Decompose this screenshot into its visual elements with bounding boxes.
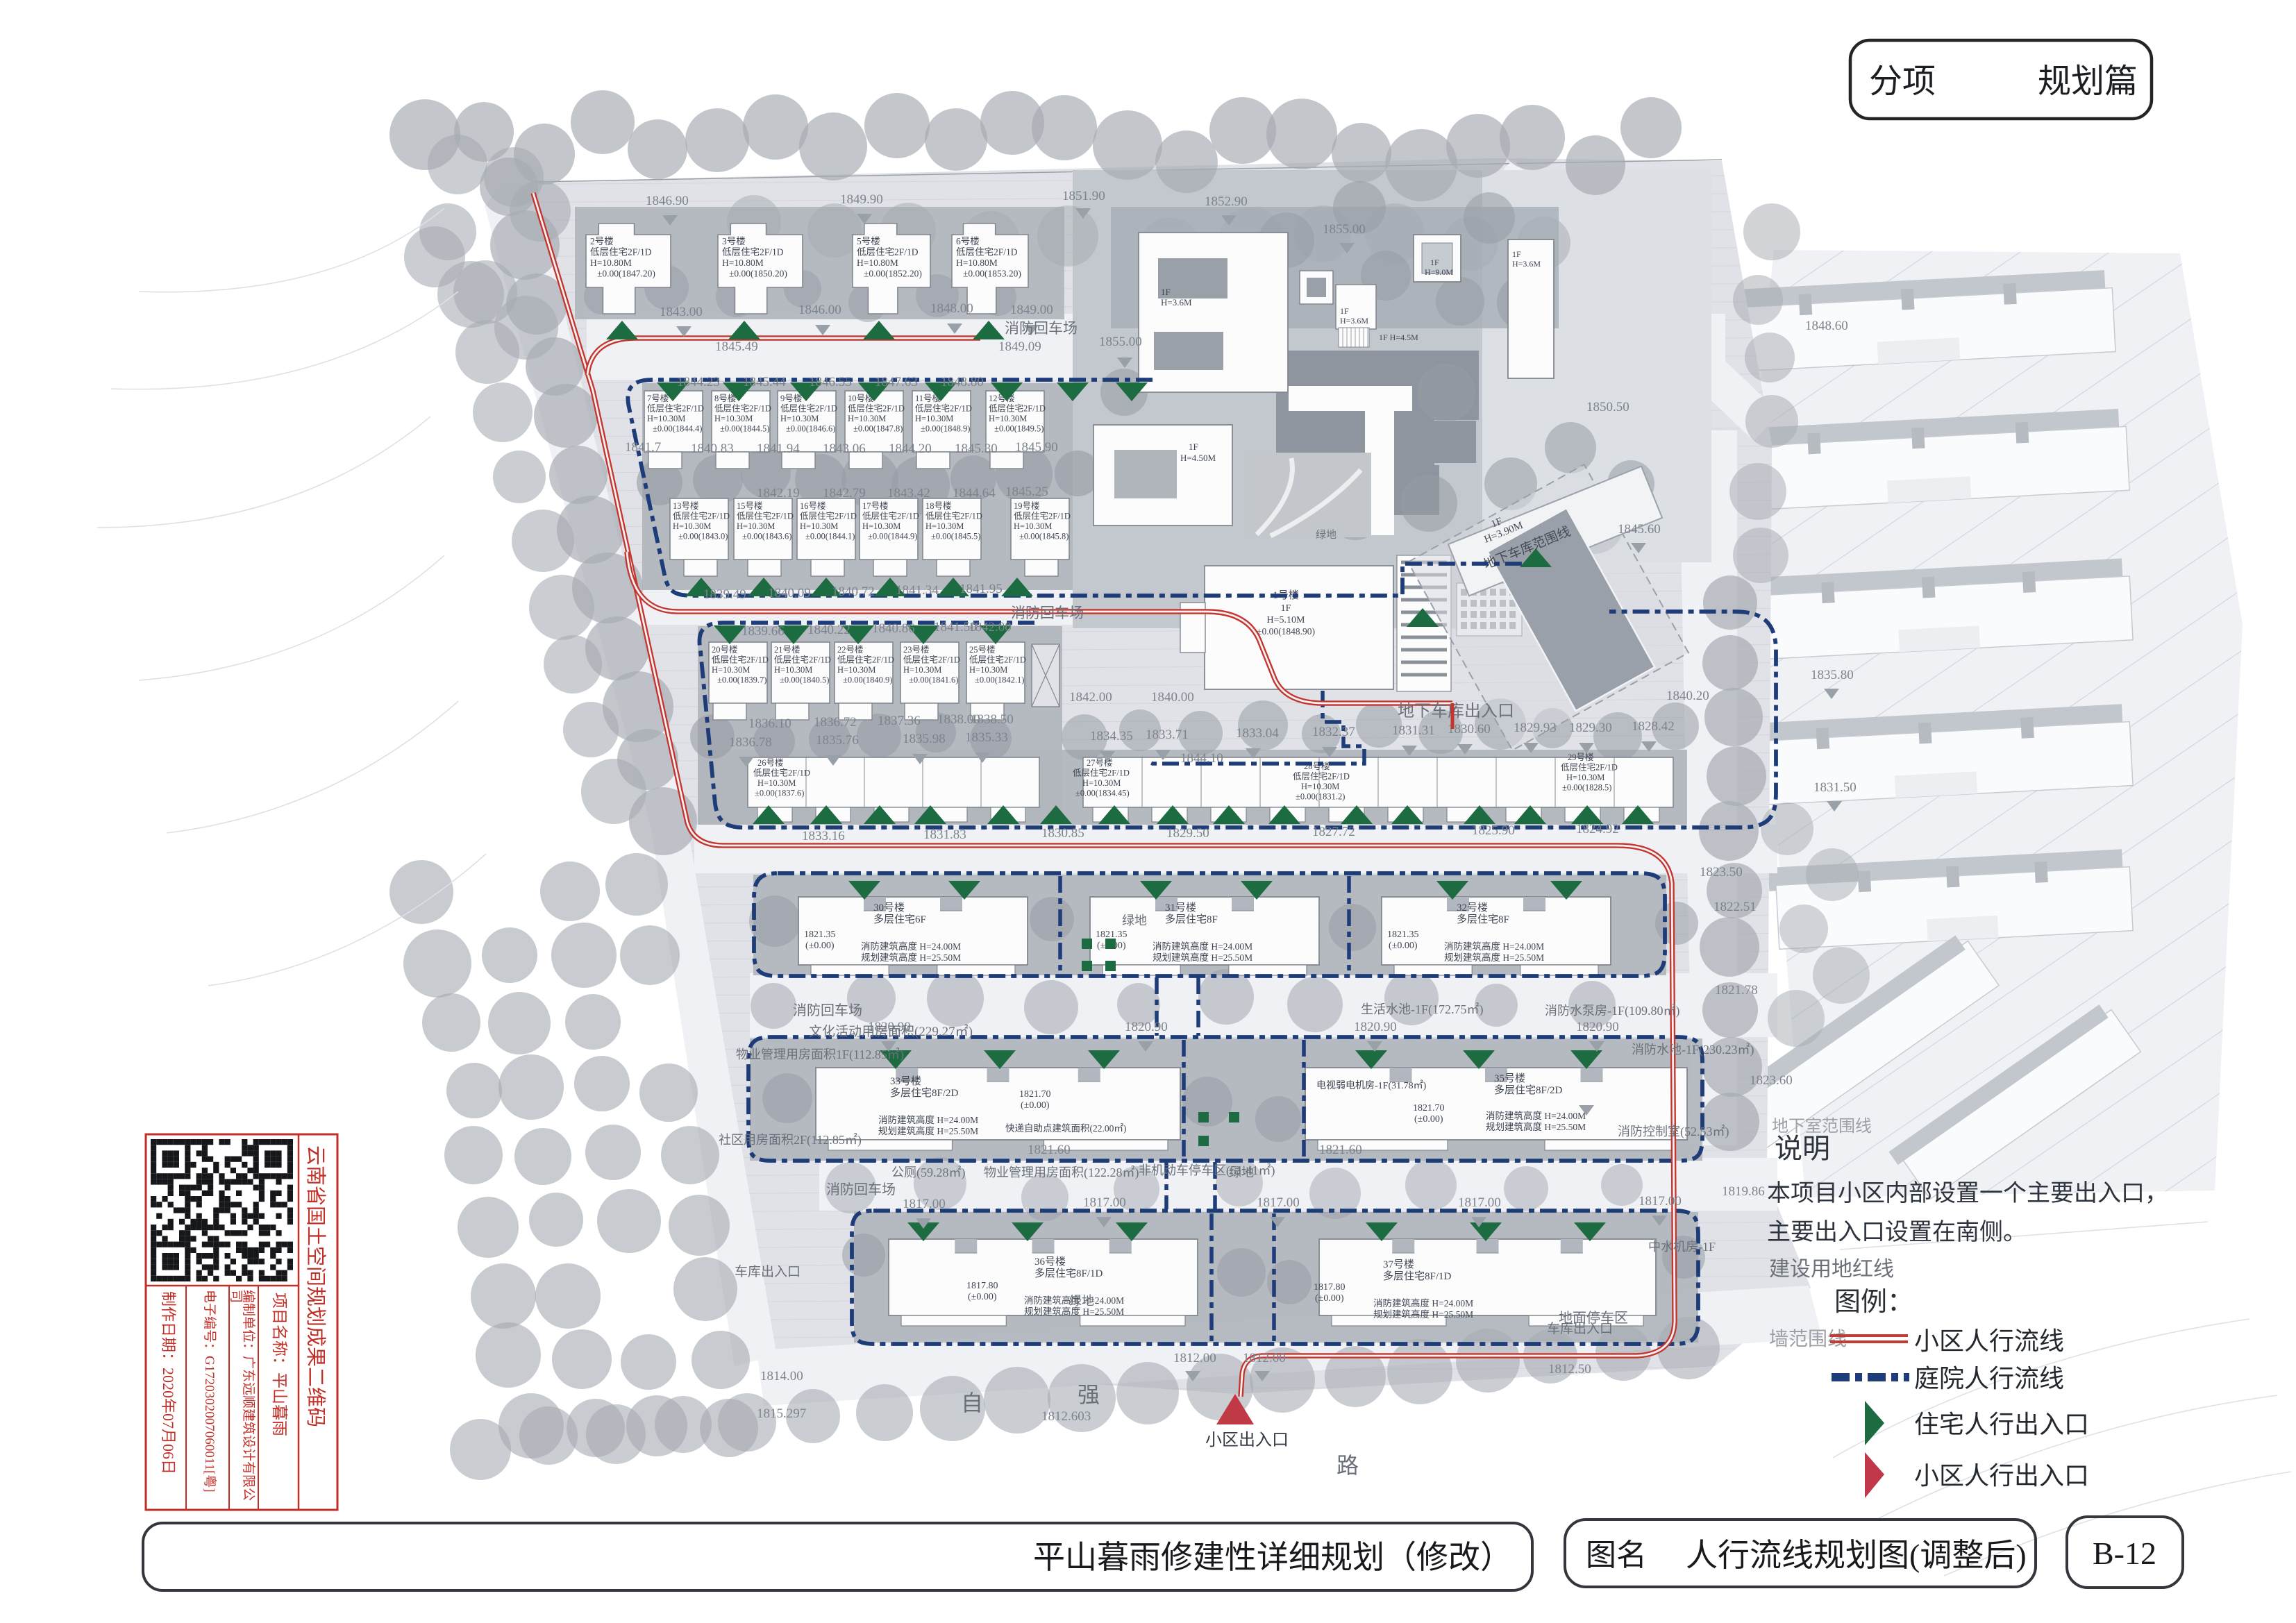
svg-text:低层住宅2F/1D: 低层住宅2F/1D (590, 247, 652, 258)
svg-text:18号楼: 18号楼 (925, 501, 952, 511)
svg-text:(±0.00): (±0.00) (805, 941, 835, 951)
svg-text:1823.50: 1823.50 (1700, 865, 1743, 880)
svg-text:电子编号：G1720302007060011[粤]: 电子编号：G1720302007060011[粤] (202, 1290, 217, 1492)
svg-text:1824.92: 1824.92 (1576, 822, 1619, 836)
svg-text:1831.31: 1831.31 (1392, 723, 1435, 738)
svg-text:绿地: 绿地 (1229, 1166, 1254, 1179)
svg-text:H=10.80M: H=10.80M (590, 258, 632, 268)
svg-text:制作日期：2020年07月06日: 制作日期：2020年07月06日 (160, 1291, 177, 1474)
svg-text:消防水池-1F(230.23㎡): 消防水池-1F(230.23㎡) (1632, 1042, 1754, 1057)
svg-text:1827.72: 1827.72 (1312, 825, 1355, 839)
svg-text:1817.80: 1817.80 (966, 1281, 998, 1291)
svg-text:1F: 1F (1430, 258, 1439, 267)
svg-text:±0.00(1848.9): ±0.00(1848.9) (921, 424, 970, 434)
svg-text:低层住宅2F/1D: 低层住宅2F/1D (862, 511, 919, 521)
svg-text:低层住宅2F/1D: 低层住宅2F/1D (800, 511, 857, 521)
svg-text:1849.09: 1849.09 (998, 339, 1041, 354)
svg-text:±0.00(1840.9): ±0.00(1840.9) (843, 675, 892, 685)
svg-text:公厕(59.28㎡): 公厕(59.28㎡) (891, 1165, 966, 1180)
svg-text:33号楼: 33号楼 (890, 1075, 921, 1087)
svg-text:H=3.6M: H=3.6M (1512, 259, 1541, 269)
svg-text:绿地: 绿地 (1316, 529, 1336, 541)
svg-text:H=5.10M: H=5.10M (1267, 615, 1306, 625)
svg-text:1831.83: 1831.83 (923, 827, 966, 842)
svg-text:1841.34: 1841.34 (896, 583, 939, 598)
svg-text:1835.98: 1835.98 (903, 732, 946, 746)
svg-text:23号楼: 23号楼 (903, 644, 930, 655)
svg-text:1842.79: 1842.79 (823, 486, 866, 501)
svg-text:规划建筑高度 H=25.50M: 规划建筑高度 H=25.50M (1486, 1121, 1586, 1132)
svg-text:多层住宅8F: 多层住宅8F (1457, 914, 1509, 925)
svg-text:±0.00(1828.5): ±0.00(1828.5) (1562, 783, 1611, 793)
svg-text:(±0.00): (±0.00) (1389, 941, 1418, 951)
svg-text:人行流线规划图(调整后): 人行流线规划图(调整后) (1686, 1538, 2027, 1573)
svg-text:H=10.30M: H=10.30M (925, 521, 964, 531)
svg-text:1829.30: 1829.30 (1569, 721, 1612, 735)
svg-text:绿地: 绿地 (1069, 1294, 1094, 1308)
svg-text:H=9.0M: H=9.0M (1425, 267, 1453, 277)
svg-text:±0.00(1834.45): ±0.00(1834.45) (1075, 789, 1130, 798)
svg-text:1835.76: 1835.76 (816, 733, 859, 748)
svg-text:本项目小区内部设置一个主要出入口，: 本项目小区内部设置一个主要出入口， (1767, 1180, 2168, 1206)
svg-text:小区出入口: 小区出入口 (1205, 1431, 1289, 1449)
svg-text:1841.95: 1841.95 (960, 582, 1003, 596)
svg-text:平山暮雨修建性详细规划（修改）: 平山暮雨修建性详细规划（修改） (1033, 1540, 1512, 1575)
svg-text:低层住宅2F/1D: 低层住宅2F/1D (989, 403, 1046, 414)
svg-text:17号楼: 17号楼 (862, 501, 889, 511)
svg-text:分项: 分项 (1869, 63, 1936, 100)
svg-text:编制单位：广东远顺建筑设计有限公: 编制单位：广东远顺建筑设计有限公 (241, 1290, 256, 1501)
svg-text:建设用地红线: 建设用地红线 (1769, 1258, 1894, 1281)
svg-text:快递自助点建筑面积(22.00㎡): 快递自助点建筑面积(22.00㎡) (1005, 1123, 1126, 1134)
svg-text:1812.00: 1812.00 (1173, 1351, 1216, 1365)
svg-text:1845.30: 1845.30 (955, 442, 998, 456)
svg-text:规划建筑高度 H=25.50M: 规划建筑高度 H=25.50M (1444, 952, 1544, 963)
svg-text:1825.90: 1825.90 (1472, 823, 1515, 838)
svg-text:多层住宅8F/2D: 多层住宅8F/2D (890, 1087, 959, 1099)
svg-text:H=10.30M: H=10.30M (903, 665, 941, 675)
svg-text:H=10.80M: H=10.80M (857, 258, 898, 268)
svg-text:1812.00: 1812.00 (1243, 1351, 1286, 1365)
svg-text:强: 强 (1078, 1382, 1100, 1407)
svg-text:(±0.00): (±0.00) (1315, 1293, 1344, 1304)
svg-text:1821.60: 1821.60 (1028, 1143, 1071, 1157)
svg-text:1845.60: 1845.60 (1618, 522, 1661, 537)
svg-text:H=10.30M: H=10.30M (673, 521, 711, 531)
svg-text:低层住宅2F/1D: 低层住宅2F/1D (647, 403, 704, 414)
svg-text:1817.00: 1817.00 (1257, 1195, 1300, 1210)
svg-text:15号楼: 15号楼 (737, 501, 763, 511)
svg-text:文化活动用房面积(229.27㎡): 文化活动用房面积(229.27㎡) (809, 1023, 973, 1039)
svg-text:消防回车场: 消防回车场 (826, 1181, 896, 1197)
svg-text:1851.90: 1851.90 (1062, 189, 1105, 203)
svg-text:H=10.30M: H=10.30M (837, 665, 875, 675)
svg-text:16号楼: 16号楼 (800, 501, 826, 511)
svg-text:H=3.6M: H=3.6M (1340, 316, 1368, 326)
svg-text:消防建筑高度 H=24.00M: 消防建筑高度 H=24.00M (1373, 1297, 1473, 1309)
svg-text:1841.94: 1841.94 (757, 442, 800, 456)
svg-text:19号楼: 19号楼 (1014, 501, 1040, 511)
svg-text:5号楼: 5号楼 (857, 236, 880, 246)
svg-text:1820.90: 1820.90 (1354, 1020, 1397, 1034)
svg-text:1838.50: 1838.50 (971, 712, 1014, 727)
svg-text:多层住宅6F: 多层住宅6F (873, 914, 926, 925)
svg-text:低层住宅2F/1D: 低层住宅2F/1D (857, 247, 919, 258)
svg-text:8号楼: 8号楼 (714, 393, 736, 403)
svg-text:H=10.30M: H=10.30M (1014, 521, 1052, 531)
svg-text:1829.93: 1829.93 (1514, 721, 1557, 735)
svg-text:低层住宅2F/1D: 低层住宅2F/1D (837, 655, 894, 665)
svg-text:26号楼: 26号楼 (757, 757, 784, 768)
svg-text:低层住宅2F/1D: 低层住宅2F/1D (1293, 771, 1350, 782)
svg-text:1835.33: 1835.33 (965, 730, 1008, 745)
svg-text:消防建筑高度 H=24.00M: 消防建筑高度 H=24.00M (861, 941, 961, 952)
svg-text:H=10.80M: H=10.80M (722, 258, 764, 268)
svg-text:±0.00(1842.1): ±0.00(1842.1) (975, 675, 1024, 685)
svg-text:庭院人行流线: 庭院人行流线 (1914, 1365, 2064, 1393)
svg-text:H=10.30M: H=10.30M (915, 414, 953, 423)
svg-text:1812.50: 1812.50 (1548, 1362, 1591, 1377)
svg-text:1839.49: 1839.49 (703, 587, 746, 602)
svg-text:消防回车场: 消防回车场 (793, 1002, 862, 1018)
svg-text:1F: 1F (1512, 249, 1521, 259)
svg-text:32号楼: 32号楼 (1457, 902, 1488, 914)
svg-text:消防建筑高度 H=24.00M: 消防建筑高度 H=24.00M (1153, 941, 1252, 952)
svg-text:规划篇: 规划篇 (2038, 63, 2138, 100)
svg-text:多层住宅8F/1D: 多层住宅8F/1D (1383, 1270, 1452, 1282)
svg-text:2号楼: 2号楼 (590, 236, 614, 246)
svg-text:±0.00(1847.20): ±0.00(1847.20) (597, 269, 655, 279)
svg-text:±0.00(1845.5): ±0.00(1845.5) (931, 532, 980, 541)
svg-text:云南省国土空间规划成果二维码: 云南省国土空间规划成果二维码 (304, 1145, 327, 1427)
svg-text:1855.00: 1855.00 (1099, 335, 1142, 349)
svg-text:±0.00(1846.6): ±0.00(1846.6) (786, 424, 835, 434)
svg-text:规划建筑高度 H=25.50M: 规划建筑高度 H=25.50M (878, 1125, 978, 1136)
svg-text:25号楼: 25号楼 (969, 644, 996, 655)
svg-text:1823.60: 1823.60 (1750, 1073, 1793, 1088)
svg-text:H=10.30M: H=10.30M (848, 414, 886, 423)
svg-text:1831.50: 1831.50 (1813, 780, 1857, 795)
svg-text:±0.00(1844.9): ±0.00(1844.9) (868, 532, 917, 541)
svg-text:1844.23: 1844.23 (677, 375, 720, 389)
svg-text:1F: 1F (1340, 306, 1349, 316)
svg-text:H=10.30M: H=10.30M (712, 665, 750, 675)
svg-text:低层住宅2F/1D: 低层住宅2F/1D (969, 655, 1026, 665)
svg-text:图例：: 图例： (1834, 1288, 1913, 1317)
svg-text:1840.22: 1840.22 (807, 623, 850, 637)
svg-text:1846.55: 1846.55 (809, 375, 852, 389)
svg-text:住宅人行出入口: 住宅人行出入口 (1914, 1411, 2089, 1438)
svg-text:±0.00(1844.4): ±0.00(1844.4) (653, 424, 702, 434)
svg-text:1840.00: 1840.00 (1151, 690, 1194, 705)
svg-text:H=10.30M: H=10.30M (757, 778, 796, 788)
svg-text:1817.00: 1817.00 (1639, 1194, 1682, 1209)
svg-text:主要出入口设置在南侧。: 主要出入口设置在南侧。 (1767, 1219, 2027, 1245)
svg-text:项目名称：平山暮雨: 项目名称：平山暮雨 (271, 1293, 288, 1436)
svg-text:20号楼: 20号楼 (712, 644, 738, 655)
svg-text:1849.00: 1849.00 (1010, 303, 1053, 317)
svg-text:低层住宅2F/1D: 低层住宅2F/1D (737, 511, 794, 521)
svg-text:(±0.00): (±0.00) (1021, 1100, 1050, 1111)
svg-text:中水机房-1F: 中水机房-1F (1648, 1240, 1716, 1254)
svg-text:1842.19: 1842.19 (757, 486, 800, 501)
svg-text:1836.78: 1836.78 (729, 735, 772, 750)
svg-text:1834.35: 1834.35 (1090, 729, 1133, 743)
svg-text:1849.90: 1849.90 (840, 192, 883, 207)
svg-text:±0.00(1844.1): ±0.00(1844.1) (805, 532, 855, 541)
svg-text:H=10.30M: H=10.30M (800, 521, 838, 531)
svg-text:1819.86: 1819.86 (1722, 1184, 1765, 1199)
svg-text:H=4.50M: H=4.50M (1180, 453, 1216, 463)
svg-text:(±0.00): (±0.00) (1414, 1114, 1443, 1125)
svg-text:地面停车区: 地面停车区 (1559, 1310, 1628, 1326)
svg-text:±0.00(1841.6): ±0.00(1841.6) (909, 675, 958, 685)
svg-text:低层住宅2F/1D: 低层住宅2F/1D (925, 511, 982, 521)
svg-text:±0.00(1837.6): ±0.00(1837.6) (755, 789, 804, 798)
svg-text:1846.00: 1846.00 (798, 303, 841, 317)
svg-text:低层住宅2F/1D: 低层住宅2F/1D (712, 655, 769, 665)
svg-text:非机动车停车区(51.41㎡): 非机动车停车区(51.41㎡) (1139, 1163, 1275, 1178)
svg-text:±0.00(1840.5): ±0.00(1840.5) (780, 675, 829, 685)
svg-text:1845.49: 1845.49 (715, 339, 758, 354)
svg-text:1817.00: 1817.00 (903, 1197, 946, 1211)
svg-text:±0.00(1843.6): ±0.00(1843.6) (742, 532, 791, 541)
svg-text:H=10.30M: H=10.30M (862, 521, 900, 531)
svg-text:13号楼: 13号楼 (673, 501, 699, 511)
svg-text:低层住宅2F/1D: 低层住宅2F/1D (848, 403, 905, 414)
svg-text:H=10.30M: H=10.30M (714, 414, 753, 423)
svg-text:31号楼: 31号楼 (1165, 902, 1196, 914)
svg-text:低层住宅2F/1D: 低层住宅2F/1D (1014, 511, 1071, 521)
svg-text:1833.16: 1833.16 (802, 829, 845, 843)
svg-text:1822.51: 1822.51 (1713, 900, 1757, 914)
svg-text:地下车库出入口: 地下车库出入口 (1398, 702, 1514, 721)
svg-text:1837.36: 1837.36 (878, 714, 921, 728)
svg-text:1852.90: 1852.90 (1205, 194, 1248, 209)
svg-text:低层住宅2F/1D: 低层住宅2F/1D (1561, 762, 1618, 773)
svg-text:电视弱电机房-1F(31.78㎡): 电视弱电机房-1F(31.78㎡) (1316, 1080, 1427, 1091)
svg-text:30号楼: 30号楼 (873, 902, 905, 914)
svg-text:1843.06: 1843.06 (823, 442, 866, 456)
svg-text:H=10.30M: H=10.30M (969, 665, 1007, 675)
svg-text:6号楼: 6号楼 (956, 236, 980, 246)
svg-text:路: 路 (1336, 1453, 1359, 1478)
svg-text:1F: 1F (1281, 603, 1291, 614)
svg-text:多层住宅8F/1D: 多层住宅8F/1D (1034, 1268, 1103, 1279)
svg-text:说明: 说明 (1775, 1133, 1830, 1164)
svg-text:车库出入口: 车库出入口 (735, 1264, 801, 1279)
svg-text:7号楼: 7号楼 (647, 393, 669, 403)
svg-text:1841.7: 1841.7 (625, 440, 661, 455)
svg-text:1844.20: 1844.20 (889, 442, 932, 456)
svg-text:低层住宅2F/1D: 低层住宅2F/1D (956, 247, 1018, 258)
svg-text:1832.37: 1832.37 (1312, 725, 1355, 739)
svg-text:物业管理用房面积1F(112.85㎡): 物业管理用房面积1F(112.85㎡) (736, 1047, 904, 1062)
svg-text:1812.603: 1812.603 (1041, 1409, 1091, 1424)
svg-text:1829.50: 1829.50 (1166, 826, 1209, 841)
svg-text:物业管理用房面积(122.28㎡): 物业管理用房面积(122.28㎡) (984, 1165, 1139, 1180)
svg-text:1840.09: 1840.09 (768, 586, 811, 600)
svg-text:1840.86: 1840.86 (872, 621, 915, 636)
svg-text:±0.00(1844.5): ±0.00(1844.5) (720, 424, 769, 434)
svg-text:图名: 图名 (1586, 1538, 1647, 1572)
svg-text:1815.297: 1815.297 (757, 1406, 806, 1421)
svg-text:1814.00: 1814.00 (760, 1369, 803, 1384)
svg-text:H=10.30M: H=10.30M (647, 414, 685, 423)
svg-text:29号楼: 29号楼 (1568, 752, 1594, 762)
svg-text:1821.35: 1821.35 (1096, 930, 1128, 940)
svg-text:多层住宅8F/2D: 多层住宅8F/2D (1494, 1084, 1563, 1096)
svg-text:低层住宅2F/1D: 低层住宅2F/1D (915, 403, 972, 414)
svg-text:±0.00(1847.8): ±0.00(1847.8) (853, 424, 903, 434)
svg-text:多层住宅8F: 多层住宅8F (1165, 914, 1218, 925)
svg-text:规划建筑高度 H=25.50M: 规划建筑高度 H=25.50M (1153, 952, 1252, 963)
svg-text:1840.20: 1840.20 (1666, 689, 1709, 703)
svg-text:低层住宅2F/1D: 低层住宅2F/1D (714, 403, 771, 414)
svg-text:消防控制室(52.53㎡): 消防控制室(52.53㎡) (1618, 1124, 1729, 1139)
svg-text:消防建筑高度 H=24.00M: 消防建筑高度 H=24.00M (1486, 1110, 1586, 1121)
svg-text:1821.60: 1821.60 (1319, 1143, 1362, 1157)
svg-text:司: 司 (228, 1290, 243, 1303)
svg-text:±0.00(1839.7): ±0.00(1839.7) (717, 675, 766, 685)
svg-text:H=10.30M: H=10.30M (1566, 773, 1604, 782)
svg-text:1817.80: 1817.80 (1314, 1282, 1346, 1293)
svg-text:低层住宅2F/1D: 低层住宅2F/1D (673, 511, 730, 521)
svg-text:1840.72: 1840.72 (832, 585, 875, 599)
svg-text:±0.00(1845.8): ±0.00(1845.8) (1019, 532, 1069, 541)
svg-text:H=3.6M: H=3.6M (1161, 297, 1192, 308)
svg-text:H=10.30M: H=10.30M (989, 414, 1027, 423)
svg-text:35号楼: 35号楼 (1494, 1073, 1525, 1084)
svg-text:1821.78: 1821.78 (1715, 983, 1758, 998)
svg-text:1847.63: 1847.63 (875, 375, 918, 389)
svg-text:低层住宅2F/1D: 低层住宅2F/1D (753, 768, 810, 778)
svg-text:低层住宅2F/1D: 低层住宅2F/1D (774, 655, 831, 665)
svg-text:1848.80: 1848.80 (941, 375, 984, 389)
svg-text:小区人行流线: 小区人行流线 (1914, 1327, 2064, 1355)
svg-text:H=10.30M: H=10.30M (774, 665, 812, 675)
svg-text:1844.10: 1844.10 (1180, 751, 1223, 766)
svg-text:消防建筑高度 H=24.00M: 消防建筑高度 H=24.00M (1444, 941, 1544, 952)
svg-text:1821.70: 1821.70 (1413, 1103, 1445, 1113)
svg-text:22号楼: 22号楼 (837, 644, 864, 655)
svg-text:1845.90: 1845.90 (1015, 440, 1058, 455)
svg-text:3号楼: 3号楼 (722, 236, 746, 246)
svg-text:绿地: 绿地 (1122, 914, 1147, 927)
svg-text:1833.04: 1833.04 (1236, 726, 1279, 741)
svg-text:消防回车场: 消防回车场 (1005, 320, 1078, 337)
svg-text:1848.00: 1848.00 (930, 301, 973, 316)
svg-text:±0.00(1849.5): ±0.00(1849.5) (994, 424, 1044, 434)
svg-text:±0.00(1843.0): ±0.00(1843.0) (678, 532, 728, 541)
svg-text:生活水池-1F(172.75㎡): 生活水池-1F(172.75㎡) (1361, 1002, 1484, 1017)
svg-text:消防建筑高度 H=24.00M: 消防建筑高度 H=24.00M (878, 1114, 978, 1125)
svg-text:1835.80: 1835.80 (1811, 668, 1854, 682)
svg-text:21号楼: 21号楼 (774, 644, 801, 655)
svg-text:H=10.30M: H=10.30M (1082, 778, 1121, 788)
svg-text:H=10.80M: H=10.80M (956, 258, 998, 268)
svg-text:1817.00: 1817.00 (1458, 1195, 1501, 1210)
svg-text:低层住宅2F/1D: 低层住宅2F/1D (722, 247, 784, 258)
svg-text:低层住宅2F/1D: 低层住宅2F/1D (780, 403, 837, 414)
svg-text:1F H=4.5M: 1F H=4.5M (1379, 333, 1418, 342)
svg-text:±0.00(1852.20): ±0.00(1852.20) (864, 269, 922, 279)
svg-text:1821.35: 1821.35 (804, 930, 836, 940)
svg-text:1836.10: 1836.10 (748, 716, 791, 731)
svg-text:1843.00: 1843.00 (660, 305, 703, 319)
svg-text:社区用房面积2F(112.85㎡): 社区用房面积2F(112.85㎡) (719, 1132, 862, 1147)
svg-text:1850.50: 1850.50 (1586, 400, 1629, 414)
svg-text:±0.00(1848.90): ±0.00(1848.90) (1257, 626, 1315, 637)
svg-text:1845.44: 1845.44 (743, 375, 786, 389)
svg-text:小区人行出入口: 小区人行出入口 (1914, 1462, 2089, 1490)
svg-text:±0.00(1831.2): ±0.00(1831.2) (1296, 792, 1345, 802)
svg-text:(±0.00): (±0.00) (968, 1292, 997, 1302)
svg-text:1844.64: 1844.64 (953, 486, 996, 501)
svg-text:1842.00: 1842.00 (969, 620, 1012, 634)
svg-text:1830.85: 1830.85 (1041, 826, 1084, 841)
svg-text:1817.00: 1817.00 (1083, 1195, 1126, 1210)
svg-text:±0.00(1853.20): ±0.00(1853.20) (963, 269, 1021, 279)
svg-text:1821.35: 1821.35 (1387, 930, 1419, 940)
svg-text:1828.42: 1828.42 (1632, 719, 1675, 734)
svg-text:37号楼: 37号楼 (1383, 1259, 1414, 1270)
svg-text:B-12: B-12 (2093, 1536, 2156, 1571)
svg-text:H=10.30M: H=10.30M (737, 521, 775, 531)
svg-text:H=10.30M: H=10.30M (780, 414, 819, 423)
svg-text:1820.90: 1820.90 (1576, 1020, 1619, 1034)
svg-text:1836.72: 1836.72 (814, 715, 857, 730)
svg-text:±0.00(1850.20): ±0.00(1850.20) (729, 269, 787, 279)
svg-text:规划建筑高度 H=25.50M: 规划建筑高度 H=25.50M (861, 952, 961, 963)
svg-text:9号楼: 9号楼 (780, 393, 802, 403)
svg-text:1F: 1F (1161, 287, 1171, 297)
svg-text:自: 自 (961, 1390, 983, 1415)
svg-text:消防回车场: 消防回车场 (1011, 605, 1084, 621)
svg-text:消防水泵房-1F(109.80㎡): 消防水泵房-1F(109.80㎡) (1545, 1003, 1680, 1018)
svg-text:低层住宅2F/1D: 低层住宅2F/1D (1073, 768, 1130, 778)
svg-text:1821.70: 1821.70 (1019, 1089, 1051, 1100)
svg-text:低层住宅2F/1D: 低层住宅2F/1D (903, 655, 960, 665)
svg-text:1845.25: 1845.25 (1005, 485, 1048, 499)
svg-text:墙范围线: 墙范围线 (1769, 1328, 1847, 1350)
svg-text:1820.90: 1820.90 (1125, 1020, 1168, 1034)
svg-text:1848.60: 1848.60 (1805, 319, 1848, 333)
svg-text:1833.71: 1833.71 (1146, 728, 1189, 742)
svg-text:36号楼: 36号楼 (1034, 1256, 1066, 1268)
svg-text:1840.83: 1840.83 (691, 442, 734, 456)
svg-text:1842.00: 1842.00 (1069, 690, 1112, 705)
svg-text:1F: 1F (1189, 442, 1198, 452)
svg-text:1846.90: 1846.90 (646, 194, 689, 208)
svg-text:规划建筑高度 H=25.50M: 规划建筑高度 H=25.50M (1373, 1309, 1473, 1320)
svg-text:1843.42: 1843.42 (887, 486, 930, 501)
svg-text:1855.00: 1855.00 (1323, 222, 1366, 237)
svg-text:H=10.30M: H=10.30M (1301, 782, 1339, 791)
svg-text:1839.66: 1839.66 (741, 624, 785, 639)
